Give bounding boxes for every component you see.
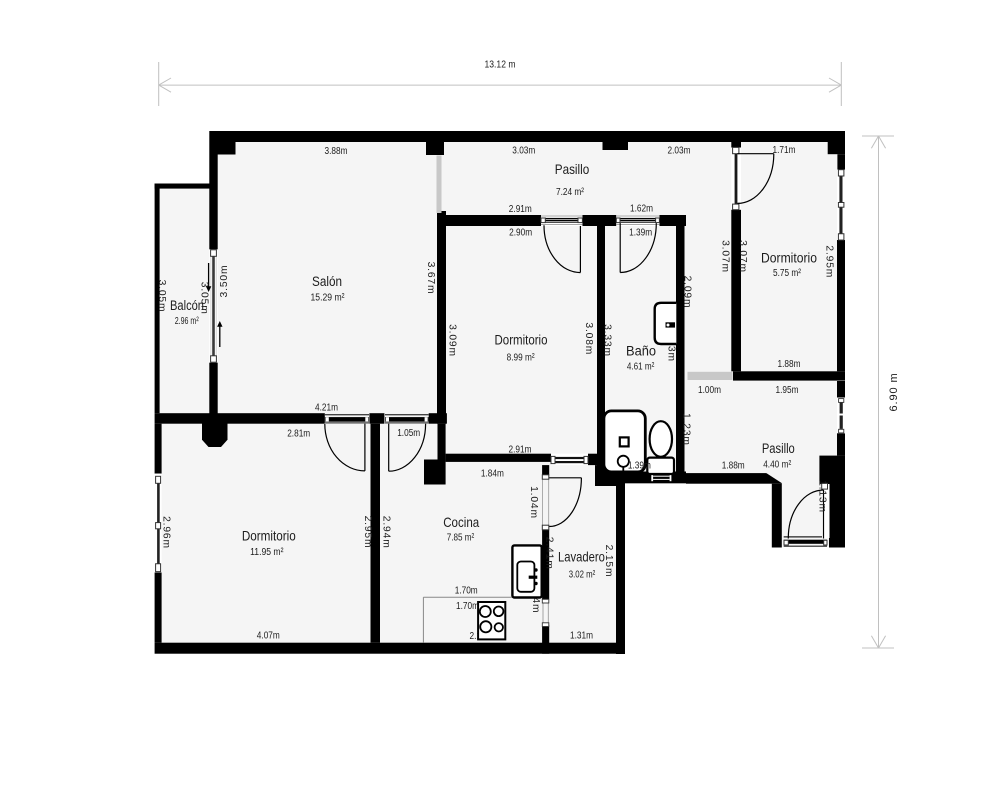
svg-text:2.90m: 2.90m — [509, 227, 532, 238]
svg-text:3.05m: 3.05m — [156, 280, 167, 313]
svg-text:2.81m: 2.81m — [287, 428, 310, 439]
svg-text:2.91m: 2.91m — [509, 444, 532, 455]
svg-text:Pasillo: Pasillo — [555, 161, 589, 177]
svg-text:3.33m: 3.33m — [601, 324, 612, 357]
svg-text:Pasillo: Pasillo — [762, 441, 795, 456]
svg-text:1.71m: 1.71m — [773, 144, 796, 155]
svg-text:Dormitorio: Dormitorio — [495, 331, 548, 347]
svg-text:2.09m: 2.09m — [681, 276, 692, 309]
svg-text:2.15m: 2.15m — [603, 545, 614, 578]
svg-text:13.12 m: 13.12 m — [485, 59, 516, 71]
svg-text:2.41m: 2.41m — [543, 537, 554, 570]
svg-text:6.90 m: 6.90 m — [888, 372, 900, 411]
svg-text:1.88m: 1.88m — [722, 460, 745, 471]
svg-text:3.09m: 3.09m — [446, 324, 457, 357]
svg-text:3.05m: 3.05m — [198, 282, 209, 315]
svg-text:1.13m: 1.13m — [816, 480, 827, 513]
svg-text:1.00m: 1.00m — [698, 384, 721, 395]
svg-text:11.95 m²: 11.95 m² — [250, 547, 283, 559]
svg-text:3.50m: 3.50m — [219, 265, 230, 298]
svg-text:3.07m: 3.07m — [737, 240, 748, 273]
svg-text:3.02 m²: 3.02 m² — [569, 569, 595, 580]
svg-text:Baño: Baño — [626, 343, 656, 359]
svg-text:2.94m: 2.94m — [380, 516, 391, 549]
svg-text:Dormitorio: Dormitorio — [242, 527, 296, 543]
svg-text:5.75 m²: 5.75 m² — [773, 267, 801, 278]
svg-text:3.07m: 3.07m — [720, 240, 731, 273]
svg-text:1.84m: 1.84m — [481, 468, 504, 479]
svg-text:Dormitorio: Dormitorio — [761, 250, 817, 266]
svg-text:7.85 m²: 7.85 m² — [447, 532, 475, 543]
svg-text:1.88m: 1.88m — [778, 358, 801, 369]
svg-text:1.62m: 1.62m — [630, 203, 653, 214]
svg-text:2.95m: 2.95m — [823, 245, 834, 278]
svg-text:3.88m: 3.88m — [325, 145, 348, 156]
svg-text:3.67m: 3.67m — [425, 262, 436, 295]
svg-text:4.40 m²: 4.40 m² — [763, 459, 791, 470]
svg-text:2.95m: 2.95m — [362, 516, 373, 549]
svg-text:1.23m: 1.23m — [680, 413, 691, 446]
svg-text:4.21m: 4.21m — [315, 402, 338, 413]
svg-text:2.96 m²: 2.96 m² — [175, 315, 199, 327]
svg-text:1.05m: 1.05m — [397, 427, 420, 438]
svg-text:15.29 m²: 15.29 m² — [311, 292, 345, 304]
svg-text:3.03m: 3.03m — [512, 145, 535, 156]
svg-text:1.31m: 1.31m — [570, 630, 593, 641]
svg-text:3.08m: 3.08m — [583, 322, 594, 355]
svg-text:4.61 m²: 4.61 m² — [627, 360, 655, 371]
svg-text:2.91m: 2.91m — [509, 203, 532, 214]
svg-text:1.04m: 1.04m — [528, 486, 539, 519]
svg-text:4.07m: 4.07m — [257, 630, 280, 641]
svg-text:2.96m: 2.96m — [160, 516, 171, 549]
svg-text:8.99 m²: 8.99 m² — [507, 352, 535, 363]
svg-text:1.70m: 1.70m — [455, 585, 478, 596]
svg-text:Salón: Salón — [312, 273, 342, 289]
svg-text:Cocina: Cocina — [443, 514, 480, 530]
svg-text:1.39m: 1.39m — [628, 459, 651, 470]
svg-text:1.95m: 1.95m — [776, 384, 799, 395]
svg-text:2.03m: 2.03m — [668, 145, 691, 156]
svg-text:1.39m: 1.39m — [629, 227, 652, 238]
svg-text:7.24 m²: 7.24 m² — [556, 186, 584, 197]
svg-text:Lavadero: Lavadero — [558, 549, 605, 564]
svg-text:1.70m: 1.70m — [456, 600, 479, 611]
